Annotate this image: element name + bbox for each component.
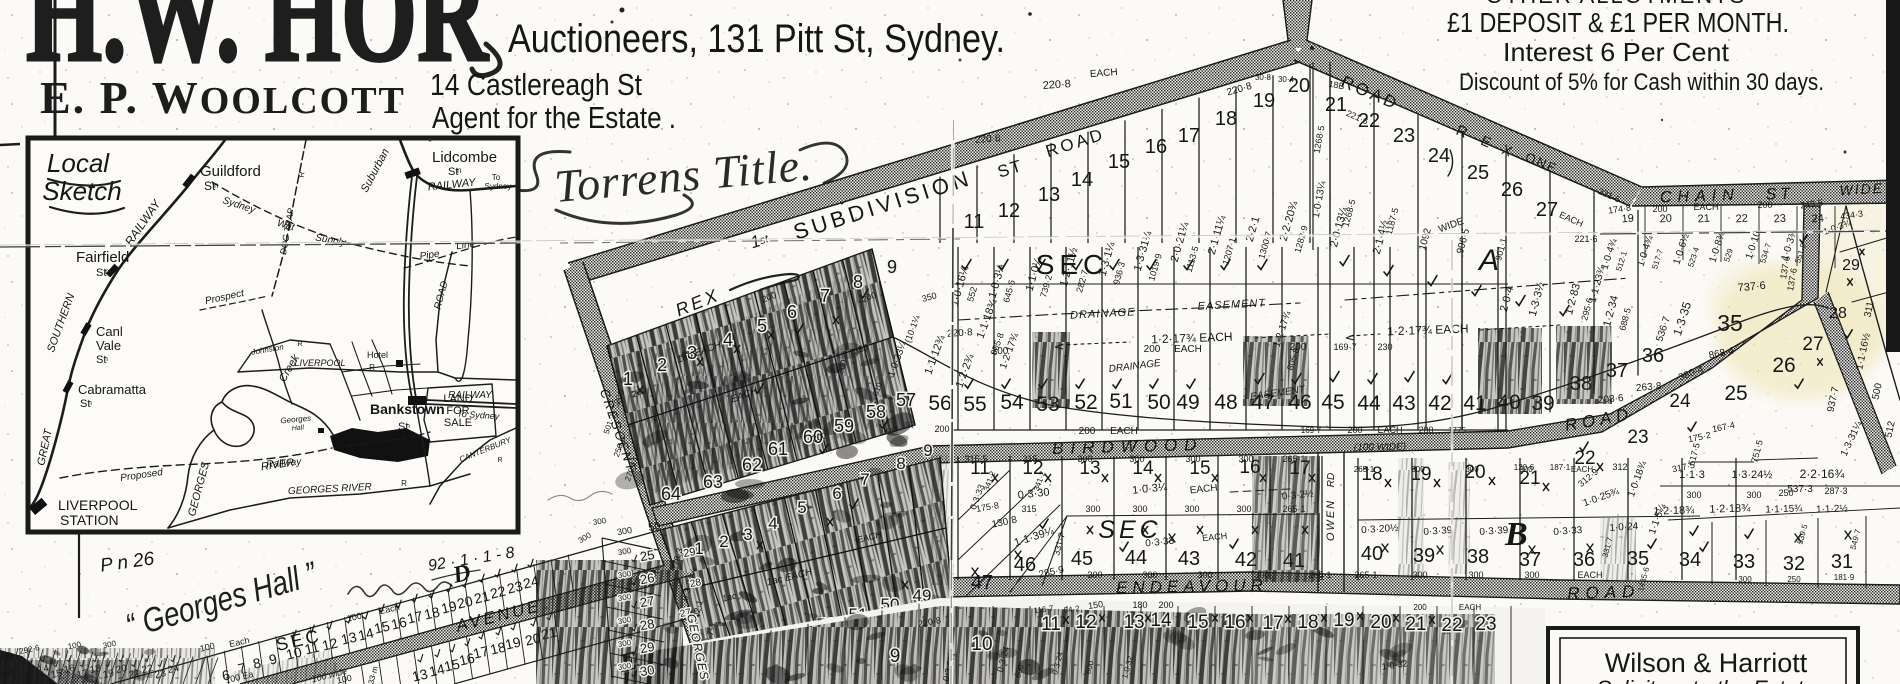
svg-text:63: 63	[703, 472, 723, 492]
svg-text:ROAD: ROAD	[1567, 582, 1641, 604]
svg-text:169·7: 169·7	[1333, 342, 1356, 352]
svg-text:230: 230	[1377, 342, 1392, 352]
svg-text:Wilson & Harriott: Wilson & Harriott	[1605, 648, 1808, 678]
svg-text:61: 61	[768, 439, 788, 459]
svg-text:24: 24	[1669, 391, 1691, 412]
svg-text:Canl: Canl	[96, 324, 123, 339]
svg-text:21: 21	[1325, 94, 1347, 116]
svg-text:180: 180	[1132, 600, 1147, 610]
svg-text:1·2·18¾: 1·2·18¾	[1653, 504, 1695, 517]
svg-text:Auctioneers, 131 Pitt St, Sydn: Auctioneers, 131 Pitt St, Sydney.	[508, 17, 1005, 61]
svg-text:29: 29	[682, 546, 696, 560]
svg-text:300: 300	[1085, 504, 1100, 514]
svg-text:28: 28	[639, 616, 656, 633]
svg-text:2·2·16¾: 2·2·16¾	[1800, 467, 1846, 481]
svg-text:RD: RD	[1326, 473, 1337, 487]
svg-text:5: 5	[797, 498, 806, 517]
svg-text:24: 24	[1811, 213, 1824, 226]
svg-text:Bankstown: Bankstown	[370, 401, 445, 417]
svg-text:13: 13	[1123, 612, 1144, 633]
svg-text:40: 40	[1361, 543, 1383, 565]
svg-text:45: 45	[1321, 391, 1344, 414]
svg-text:48: 48	[1214, 391, 1237, 414]
svg-text:20: 20	[1659, 213, 1672, 226]
svg-text:315: 315	[1021, 504, 1036, 514]
svg-text:50: 50	[647, 520, 661, 534]
svg-text:23: 23	[1475, 614, 1496, 635]
svg-text:18: 18	[1297, 612, 1318, 633]
svg-text:220·8: 220·8	[975, 133, 1002, 146]
svg-text:300: 300	[1132, 504, 1147, 514]
svg-text:300: 300	[1238, 454, 1253, 464]
svg-text:n: n	[105, 267, 109, 276]
svg-text:Solicitors to the Estate: Solicitors to the Estate	[1597, 676, 1816, 684]
svg-text:300: 300	[1411, 465, 1425, 474]
svg-text:250: 250	[1787, 575, 1801, 584]
svg-text:ENDEAVOUR: ENDEAVOUR	[1116, 576, 1268, 598]
svg-text:27: 27	[1802, 334, 1823, 355]
svg-text:15: 15	[1108, 151, 1130, 173]
svg-text:12: 12	[1075, 612, 1096, 633]
svg-text:263·8: 263·8	[1636, 381, 1663, 394]
svg-text:1·1·2½: 1·1·2½	[1816, 503, 1849, 515]
svg-text:737·6: 737·6	[1737, 280, 1766, 294]
svg-text:21: 21	[1405, 614, 1426, 635]
svg-text:30·4: 30·4	[1278, 75, 1295, 84]
svg-text:55: 55	[963, 393, 986, 416]
svg-text:22: 22	[1735, 213, 1748, 226]
svg-text:200: 200	[1347, 425, 1362, 435]
svg-text:25: 25	[1467, 162, 1489, 184]
svg-text:150: 150	[1087, 599, 1103, 611]
svg-text:30: 30	[639, 662, 656, 679]
svg-text:120·6: 120·6	[1514, 463, 1535, 472]
svg-text:300: 300	[1184, 504, 1199, 514]
svg-text:44: 44	[1125, 547, 1147, 569]
svg-text:11: 11	[1041, 614, 1061, 635]
svg-text:200: 200	[1413, 603, 1427, 612]
svg-text:Discount of 5% for Cash withi: Discount of 5% for Cash within 30 days.	[1459, 69, 1824, 96]
svg-text:26: 26	[1772, 354, 1795, 377]
svg-text:32: 32	[1783, 553, 1805, 575]
svg-text:300: 300	[1129, 454, 1144, 464]
svg-text:23: 23	[1627, 427, 1648, 448]
svg-text:300: 300	[1412, 570, 1427, 580]
svg-text:200: 200	[934, 424, 949, 434]
svg-text:8: 8	[853, 272, 863, 292]
svg-text:£1 DEPOSIT & £1 PER MONTH.: £1 DEPOSIT & £1 PER MONTH.	[1447, 7, 1789, 38]
svg-text:23: 23	[1393, 125, 1415, 147]
svg-text:1·0·24: 1·0·24	[1609, 521, 1639, 534]
svg-text:EACH: EACH	[1577, 570, 1602, 580]
svg-text:31: 31	[1831, 551, 1853, 573]
svg-text:R: R	[297, 341, 302, 348]
svg-text:8: 8	[896, 454, 905, 473]
svg-text:15: 15	[1187, 612, 1208, 633]
svg-text:16: 16	[1224, 612, 1245, 633]
svg-text:200: 200	[1144, 344, 1161, 355]
svg-text:EACH: EACH	[1571, 465, 1593, 474]
svg-text:300: 300	[1524, 570, 1539, 580]
svg-text:RAILWAY: RAILWAY	[448, 390, 493, 401]
svg-text:221·6: 221·6	[1574, 234, 1597, 244]
svg-text:59: 59	[834, 416, 854, 436]
svg-text:200: 200	[1079, 426, 1096, 437]
svg-text:21: 21	[1697, 213, 1710, 226]
svg-text:57: 57	[896, 390, 916, 410]
svg-text:14 Castlereagh St: 14 Castlereagh St	[430, 67, 642, 102]
svg-text:1: 1	[623, 369, 633, 389]
svg-text:35: 35	[1627, 548, 1649, 570]
svg-text:200: 200	[1652, 204, 1667, 214]
svg-text:315·5: 315·5	[964, 454, 987, 464]
svg-text:25: 25	[1724, 382, 1747, 405]
svg-text:200: 200	[1158, 600, 1173, 610]
svg-text:300: 300	[1197, 570, 1212, 580]
svg-text:19: 19	[1333, 610, 1354, 631]
svg-text:2: 2	[657, 355, 667, 375]
svg-text:43: 43	[1392, 392, 1415, 415]
svg-text:19: 19	[1621, 213, 1634, 226]
svg-text:EACH: EACH	[1090, 67, 1118, 80]
svg-text:56: 56	[928, 392, 951, 415]
svg-text:6: 6	[832, 484, 841, 503]
svg-text:17: 17	[1262, 613, 1283, 634]
svg-text:Agent for the Estate .: Agent for the Estate .	[432, 100, 676, 135]
svg-text:9: 9	[890, 646, 901, 667]
svg-text:28: 28	[1829, 305, 1847, 322]
svg-text:n: n	[104, 356, 108, 363]
svg-text:300: 300	[1077, 454, 1092, 464]
svg-text:11: 11	[964, 211, 985, 233]
svg-text:16: 16	[1145, 136, 1167, 158]
svg-text:45: 45	[1071, 548, 1093, 570]
svg-text:36: 36	[1573, 549, 1595, 571]
svg-text:300: 300	[1746, 490, 1761, 500]
svg-text:7: 7	[860, 470, 869, 489]
svg-text:4: 4	[768, 514, 777, 533]
svg-text:1·1·3: 1·1·3	[1679, 469, 1705, 481]
svg-text:47: 47	[971, 572, 993, 594]
svg-text:300: 300	[1142, 570, 1157, 580]
svg-text:14: 14	[1071, 169, 1093, 191]
svg-text:315: 315	[1022, 454, 1037, 464]
svg-text:300: 300	[1468, 570, 1483, 580]
svg-text:29: 29	[1842, 257, 1860, 274]
svg-text:49: 49	[1176, 391, 1199, 414]
svg-text:62: 62	[742, 455, 762, 475]
svg-text:n: n	[457, 166, 461, 175]
svg-text:300: 300	[1236, 504, 1251, 514]
svg-text:19: 19	[1253, 90, 1275, 112]
svg-text:0·3·39: 0·3·39	[1423, 525, 1453, 538]
svg-text:n: n	[406, 423, 410, 430]
svg-text:27: 27	[1536, 199, 1558, 221]
svg-text:EACH: EACH	[1459, 603, 1481, 612]
svg-text:18: 18	[1215, 108, 1237, 130]
svg-text:14: 14	[1150, 610, 1172, 631]
svg-text:1·2·17¾ EACH: 1·2·17¾ EACH	[1387, 322, 1469, 339]
svg-text:265·1: 265·1	[1354, 570, 1377, 580]
svg-text:(100 WIDE): (100 WIDE)	[1354, 442, 1406, 454]
svg-text:25: 25	[639, 547, 656, 564]
svg-text:R: R	[401, 479, 407, 488]
svg-text:39: 39	[1413, 545, 1435, 567]
svg-text:42: 42	[1428, 392, 1451, 415]
svg-text:OWEN: OWEN	[1325, 499, 1337, 541]
svg-text:97: 97	[905, 420, 915, 430]
svg-text:4: 4	[723, 330, 733, 350]
svg-text:1·2·18¾: 1·2·18¾	[1709, 502, 1751, 515]
svg-text:33: 33	[1733, 551, 1755, 573]
svg-text:BIRDWOOD: BIRDWOOD	[1052, 435, 1204, 458]
svg-text:300: 300	[1738, 575, 1752, 584]
svg-text:EACH: EACH	[1110, 426, 1138, 437]
svg-text:26: 26	[639, 570, 656, 587]
svg-text:WIDE: WIDE	[1839, 180, 1884, 198]
svg-text:29: 29	[639, 639, 656, 656]
svg-text:9: 9	[887, 257, 897, 277]
svg-text:Local: Local	[47, 148, 110, 178]
svg-text:Lidcombe: Lidcombe	[432, 149, 497, 166]
svg-text:n: n	[88, 400, 92, 407]
svg-text:58: 58	[866, 402, 886, 422]
svg-text:2: 2	[719, 532, 728, 551]
svg-text:Guildford: Guildford	[200, 163, 261, 180]
svg-text:300: 300	[1465, 465, 1479, 474]
svg-text:312: 312	[1612, 462, 1627, 472]
svg-text:23: 23	[1773, 213, 1786, 226]
svg-text:Interest 6 Per Cent: Interest 6 Per Cent	[1503, 37, 1730, 67]
svg-text:34: 34	[1679, 549, 1701, 571]
svg-text:44: 44	[1357, 392, 1381, 415]
svg-text:265·1: 265·1	[1354, 465, 1375, 474]
svg-text:187·1: 187·1	[1550, 463, 1571, 472]
svg-text:24: 24	[1428, 145, 1450, 167]
svg-text:Vale: Vale	[96, 338, 121, 353]
svg-text:7: 7	[820, 286, 830, 306]
svg-text:5: 5	[757, 316, 767, 336]
svg-text:30·8: 30·8	[1255, 73, 1272, 82]
svg-text:46: 46	[1014, 554, 1036, 576]
svg-text:38: 38	[1467, 546, 1489, 568]
svg-text:Cabramatta: Cabramatta	[78, 382, 147, 397]
svg-text:Hall: Hall	[292, 424, 305, 432]
svg-text:181·9: 181·9	[1834, 573, 1855, 582]
svg-text:EACH: EACH	[1377, 425, 1402, 435]
svg-text:0·3·33: 0·3·33	[1553, 525, 1583, 538]
svg-text:Fairfield: Fairfield	[76, 249, 129, 266]
svg-text:36: 36	[1642, 345, 1664, 367]
svg-text:To: To	[492, 173, 501, 182]
svg-text:300: 300	[1185, 454, 1200, 464]
svg-text:12: 12	[998, 200, 1020, 222]
svg-text:27: 27	[639, 593, 656, 610]
svg-text:300: 300	[1686, 490, 1701, 500]
svg-text:50: 50	[1147, 391, 1170, 414]
svg-text:13: 13	[1038, 184, 1060, 206]
svg-text:1·3·24½: 1·3·24½	[1732, 469, 1773, 481]
svg-text:220·8: 220·8	[1042, 78, 1071, 92]
svg-text:17: 17	[1178, 125, 1200, 147]
svg-text:EACH: EACH	[1174, 344, 1202, 355]
svg-text:R: R	[497, 457, 502, 464]
svg-text:Sydney: Sydney	[485, 182, 512, 191]
svg-text:LIVERPOOL: LIVERPOOL	[58, 497, 138, 513]
svg-text:51: 51	[1109, 390, 1132, 413]
svg-text:64: 64	[661, 484, 681, 504]
svg-text:EACH: EACH	[1693, 202, 1718, 212]
svg-text:26: 26	[1501, 179, 1523, 201]
svg-text:3: 3	[743, 525, 752, 544]
svg-text:STATION: STATION	[60, 512, 119, 528]
svg-text:287·3: 287·3	[1824, 486, 1847, 496]
svg-text:20: 20	[1370, 612, 1391, 633]
svg-text:10: 10	[971, 634, 992, 655]
svg-text:43: 43	[1178, 548, 1200, 570]
svg-text:200: 200	[1757, 200, 1772, 210]
svg-text:E. P. WOOLCOTT: E. P. WOOLCOTT	[40, 72, 406, 123]
svg-text:B: B	[1504, 516, 1528, 553]
svg-text:300: 300	[1087, 570, 1102, 580]
svg-text:169·7: 169·7	[1301, 426, 1322, 435]
svg-text:6: 6	[787, 302, 797, 322]
svg-text:200: 200	[1418, 425, 1433, 435]
